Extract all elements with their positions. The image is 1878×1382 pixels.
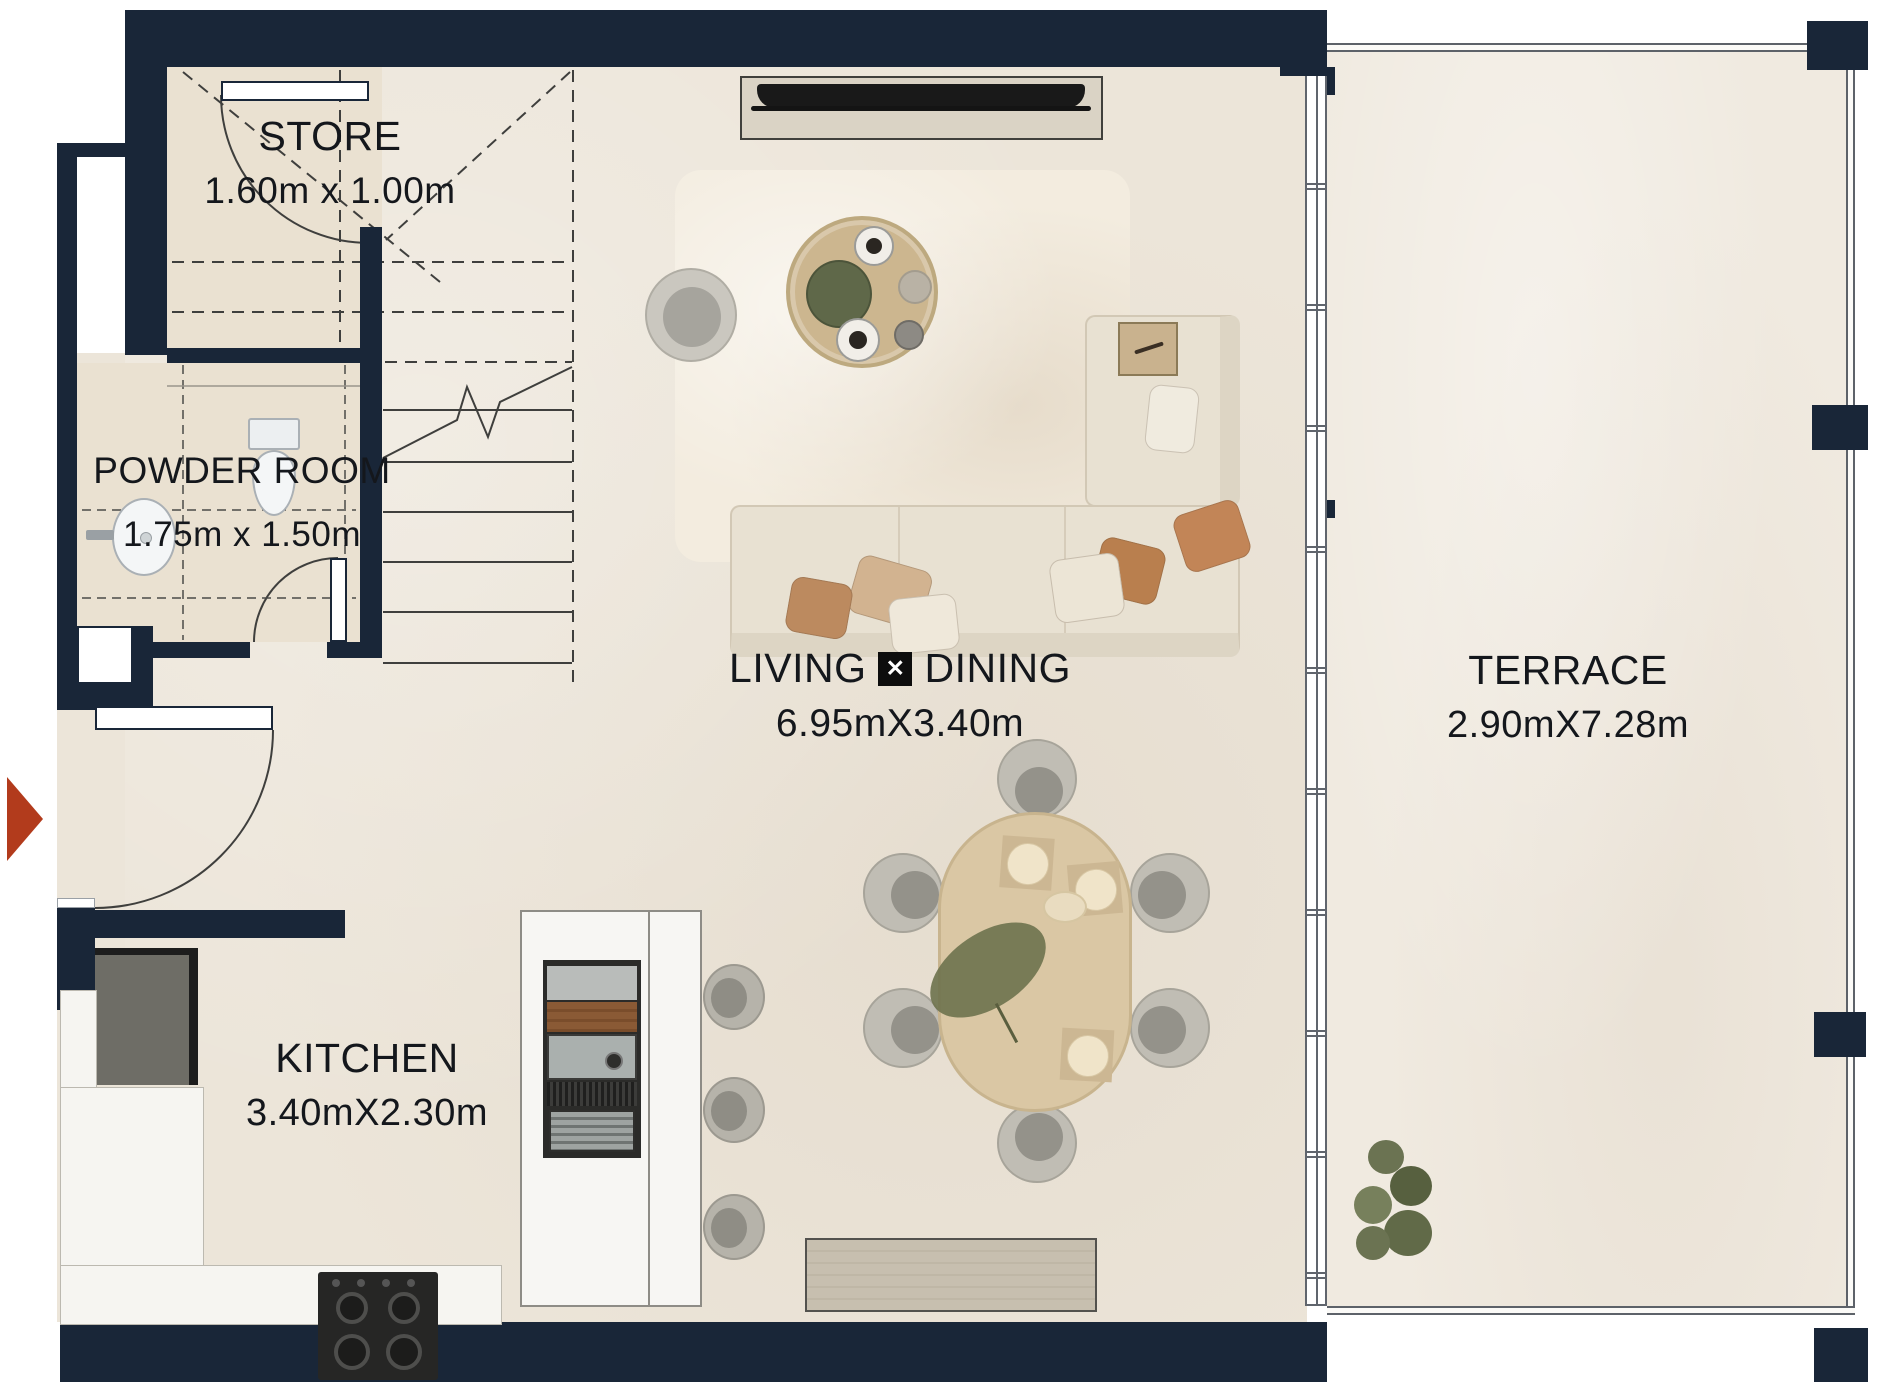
exterior-wall-left-upper bbox=[125, 10, 167, 355]
terrace-label: TERRACE 2.90mX7.28m bbox=[1398, 648, 1738, 746]
room-name: LIVING bbox=[729, 646, 866, 692]
cooktop-knob bbox=[357, 1279, 365, 1287]
cooktop bbox=[318, 1272, 438, 1380]
terrace-column bbox=[1814, 1328, 1868, 1382]
burner bbox=[386, 1334, 422, 1370]
sunglasses-icon bbox=[1134, 341, 1164, 354]
kitchen-counter bbox=[60, 1087, 204, 1267]
plant-leaf bbox=[1356, 1226, 1390, 1260]
tv-console bbox=[740, 76, 1103, 140]
room-dims: 1.60m x 1.00m bbox=[170, 170, 490, 211]
cutting-board bbox=[547, 1002, 637, 1032]
coffee-table bbox=[786, 216, 938, 368]
pillow bbox=[1144, 384, 1201, 455]
room-name: KITCHEN bbox=[217, 1036, 517, 1082]
plant-leaf bbox=[1390, 1166, 1432, 1206]
x-box-icon: ✕ bbox=[878, 652, 912, 686]
burner bbox=[334, 1334, 370, 1370]
sink bbox=[547, 1034, 637, 1080]
terrace-rail-right bbox=[1846, 43, 1855, 1315]
room-name: TERRACE bbox=[1398, 648, 1738, 694]
store-south-wall bbox=[167, 348, 382, 363]
room-name: DINING bbox=[924, 646, 1071, 692]
steel-shelf bbox=[547, 966, 637, 1000]
tv-stand bbox=[751, 106, 1091, 111]
powder-south-wall bbox=[327, 642, 382, 658]
entry-arrow-icon bbox=[7, 777, 43, 861]
exterior-notch bbox=[77, 153, 125, 353]
window-jamb-stub bbox=[1327, 500, 1335, 518]
kitchen-island bbox=[520, 910, 702, 1307]
exterior-wall-top bbox=[125, 10, 1327, 67]
service-shaft bbox=[77, 626, 133, 684]
tray bbox=[898, 270, 932, 304]
refrigerator bbox=[95, 948, 198, 1085]
terrace-column bbox=[1807, 21, 1868, 70]
terrace-plant bbox=[1340, 1130, 1450, 1280]
terrace-column bbox=[1814, 1012, 1866, 1057]
burner bbox=[336, 1292, 368, 1324]
bar-stool bbox=[703, 964, 765, 1030]
window-wall bbox=[1305, 67, 1327, 1306]
cooktop-knob bbox=[382, 1279, 390, 1287]
placemat bbox=[1060, 1028, 1115, 1083]
bar-stool bbox=[703, 1077, 765, 1143]
pillow bbox=[1048, 551, 1126, 624]
cooktop-knob bbox=[407, 1279, 415, 1287]
cooktop-knob bbox=[332, 1279, 340, 1287]
floor-plan: STORE 1.60m x 1.00m POWDER ROOM 1.75m x … bbox=[0, 0, 1878, 1382]
plate bbox=[1066, 1034, 1110, 1078]
powder-room-label: POWDER ROOM 1.75m x 1.50m bbox=[77, 450, 407, 555]
tray bbox=[1043, 891, 1087, 923]
plate bbox=[1006, 842, 1051, 887]
cup bbox=[854, 226, 894, 266]
exterior-wall-bottom bbox=[60, 1322, 1327, 1382]
window-mullion-line bbox=[1316, 69, 1318, 1304]
living-dining-label: LIVING ✕ DINING 6.95mX3.40m bbox=[714, 646, 1086, 746]
island-divider bbox=[648, 912, 650, 1305]
cup bbox=[836, 318, 880, 362]
dining-table bbox=[938, 812, 1132, 1112]
cup bbox=[894, 320, 924, 350]
entry-door-leaf bbox=[95, 706, 273, 730]
kitchen-label: KITCHEN 3.40mX2.30m bbox=[217, 1036, 517, 1134]
plant-leaf bbox=[1354, 1186, 1392, 1224]
toilet-tank bbox=[248, 418, 300, 450]
tv bbox=[757, 84, 1085, 108]
entry-door-sill bbox=[57, 898, 95, 908]
burner bbox=[388, 1292, 420, 1324]
placemat bbox=[999, 835, 1055, 891]
kitchen-divider-wall bbox=[95, 910, 345, 938]
terrace-rail-top bbox=[1327, 43, 1857, 52]
dining-chair bbox=[997, 739, 1077, 819]
store-label: STORE 1.60m x 1.00m bbox=[170, 114, 490, 211]
exterior-wall-left bbox=[57, 143, 77, 683]
leaf-stem bbox=[995, 1003, 1018, 1043]
room-name: POWDER ROOM bbox=[77, 450, 407, 491]
pillow bbox=[784, 575, 855, 641]
island-appliance-inset bbox=[543, 960, 641, 1158]
dish-rack bbox=[549, 1110, 635, 1152]
window-jamb-stub bbox=[1327, 67, 1335, 95]
powder-door-leaf bbox=[330, 558, 347, 642]
dining-chair bbox=[1130, 988, 1210, 1068]
tray-on-chaise bbox=[1118, 322, 1178, 376]
dining-chair bbox=[997, 1103, 1077, 1183]
dining-chair bbox=[863, 853, 943, 933]
armchair bbox=[645, 268, 737, 362]
armchair-seat bbox=[663, 287, 721, 347]
room-dims: 2.90mX7.28m bbox=[1398, 704, 1738, 747]
room-dims: 3.40mX2.30m bbox=[217, 1092, 517, 1135]
bar-stool bbox=[703, 1194, 765, 1260]
shaft-side-wall bbox=[133, 626, 153, 684]
store-door-leaf bbox=[221, 81, 369, 101]
powder-east-wall bbox=[360, 227, 382, 658]
plant-leaf bbox=[1384, 1210, 1432, 1256]
grill-grate bbox=[547, 1082, 637, 1106]
room-name: STORE bbox=[170, 114, 490, 160]
dining-chair bbox=[1130, 853, 1210, 933]
room-dims: 1.75m x 1.50m bbox=[77, 515, 407, 554]
terrace-column bbox=[1812, 405, 1868, 450]
terrace-rail-bottom bbox=[1327, 1306, 1855, 1315]
sink-drain bbox=[605, 1052, 623, 1070]
room-dims: 6.95mX3.40m bbox=[714, 702, 1086, 746]
sideboard bbox=[805, 1238, 1097, 1312]
